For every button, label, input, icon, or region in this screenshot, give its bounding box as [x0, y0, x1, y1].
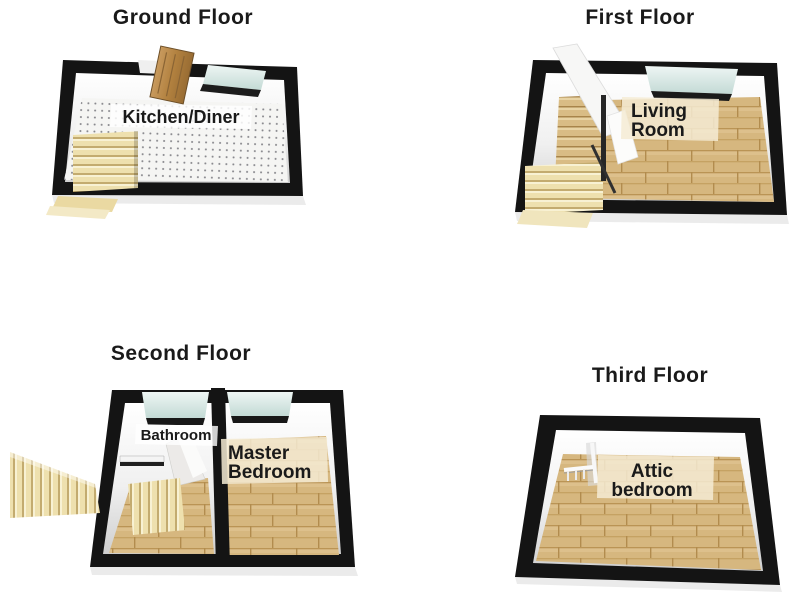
floorplan-sheet: Ground Floor First Floor Second Floor Th… — [0, 0, 800, 595]
plan-shadow — [90, 567, 358, 576]
third-floor-plan: Attic bedroom — [500, 393, 792, 593]
second-floor-plan: Bathroom Master Bedroom — [8, 372, 360, 590]
ground-floor-plan: Kitchen/Diner — [38, 42, 316, 224]
bedroom-label-line2: Bedroom — [228, 462, 311, 483]
staircase-shadow — [134, 131, 138, 188]
internal-staircase — [128, 478, 185, 535]
external-staircase — [10, 452, 100, 518]
living-room-label-line2: Room — [631, 120, 685, 141]
kitchen-staircase — [73, 131, 138, 192]
living-room-window-glass — [645, 66, 738, 94]
kitchen-label: Kitchen/Diner — [122, 107, 239, 127]
third-floor-title: Third Floor — [510, 364, 790, 388]
ground-floor-title: Ground Floor — [43, 6, 323, 30]
bathroom-window-sill — [146, 418, 205, 425]
bathroom-label: Bathroom — [141, 427, 212, 444]
bedroom-window-sill — [231, 416, 289, 423]
half-wall-edge — [120, 462, 164, 466]
stair-landing-outside — [517, 210, 593, 228]
bedroom-label-line1: Master — [228, 443, 290, 464]
bathroom-window-glass — [142, 392, 209, 418]
living-room-label-line1: Living — [631, 101, 687, 122]
second-floor-title: Second Floor — [41, 342, 321, 366]
half-wall-top — [120, 456, 164, 462]
attic-label-line2: bedroom — [611, 480, 692, 501]
staircase-lower-flight — [525, 162, 603, 214]
first-floor-title: First Floor — [500, 6, 780, 30]
attic-label-line1: Attic — [631, 461, 674, 482]
first-floor-plan: Living Room — [495, 40, 800, 236]
bedroom-window-glass — [227, 392, 293, 416]
